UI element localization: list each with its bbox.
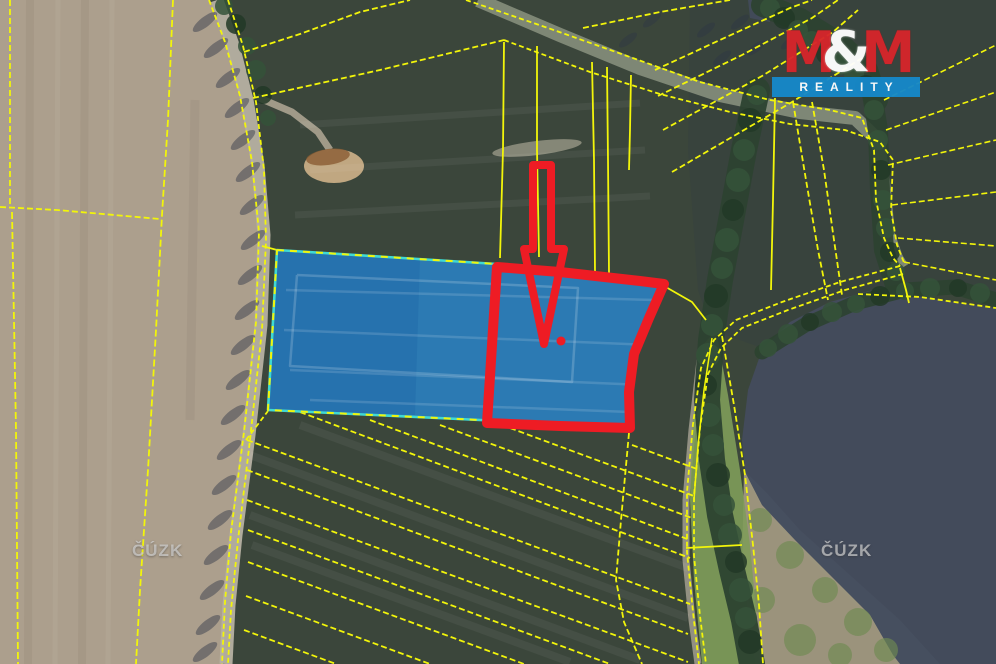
mm-reality-logo-mark: M & M <box>772 28 920 77</box>
logo-ampersand: & <box>822 25 871 81</box>
cuzk-watermark-left: ČÚZK <box>132 541 183 561</box>
mm-reality-logo: M & M REALITY <box>772 28 920 97</box>
aerial-cadastral-map: M & M REALITY ČÚZK ČÚZK <box>0 0 996 664</box>
cuzk-watermark-right: ČÚZK <box>821 541 872 561</box>
map-canvas[interactable] <box>0 0 996 664</box>
